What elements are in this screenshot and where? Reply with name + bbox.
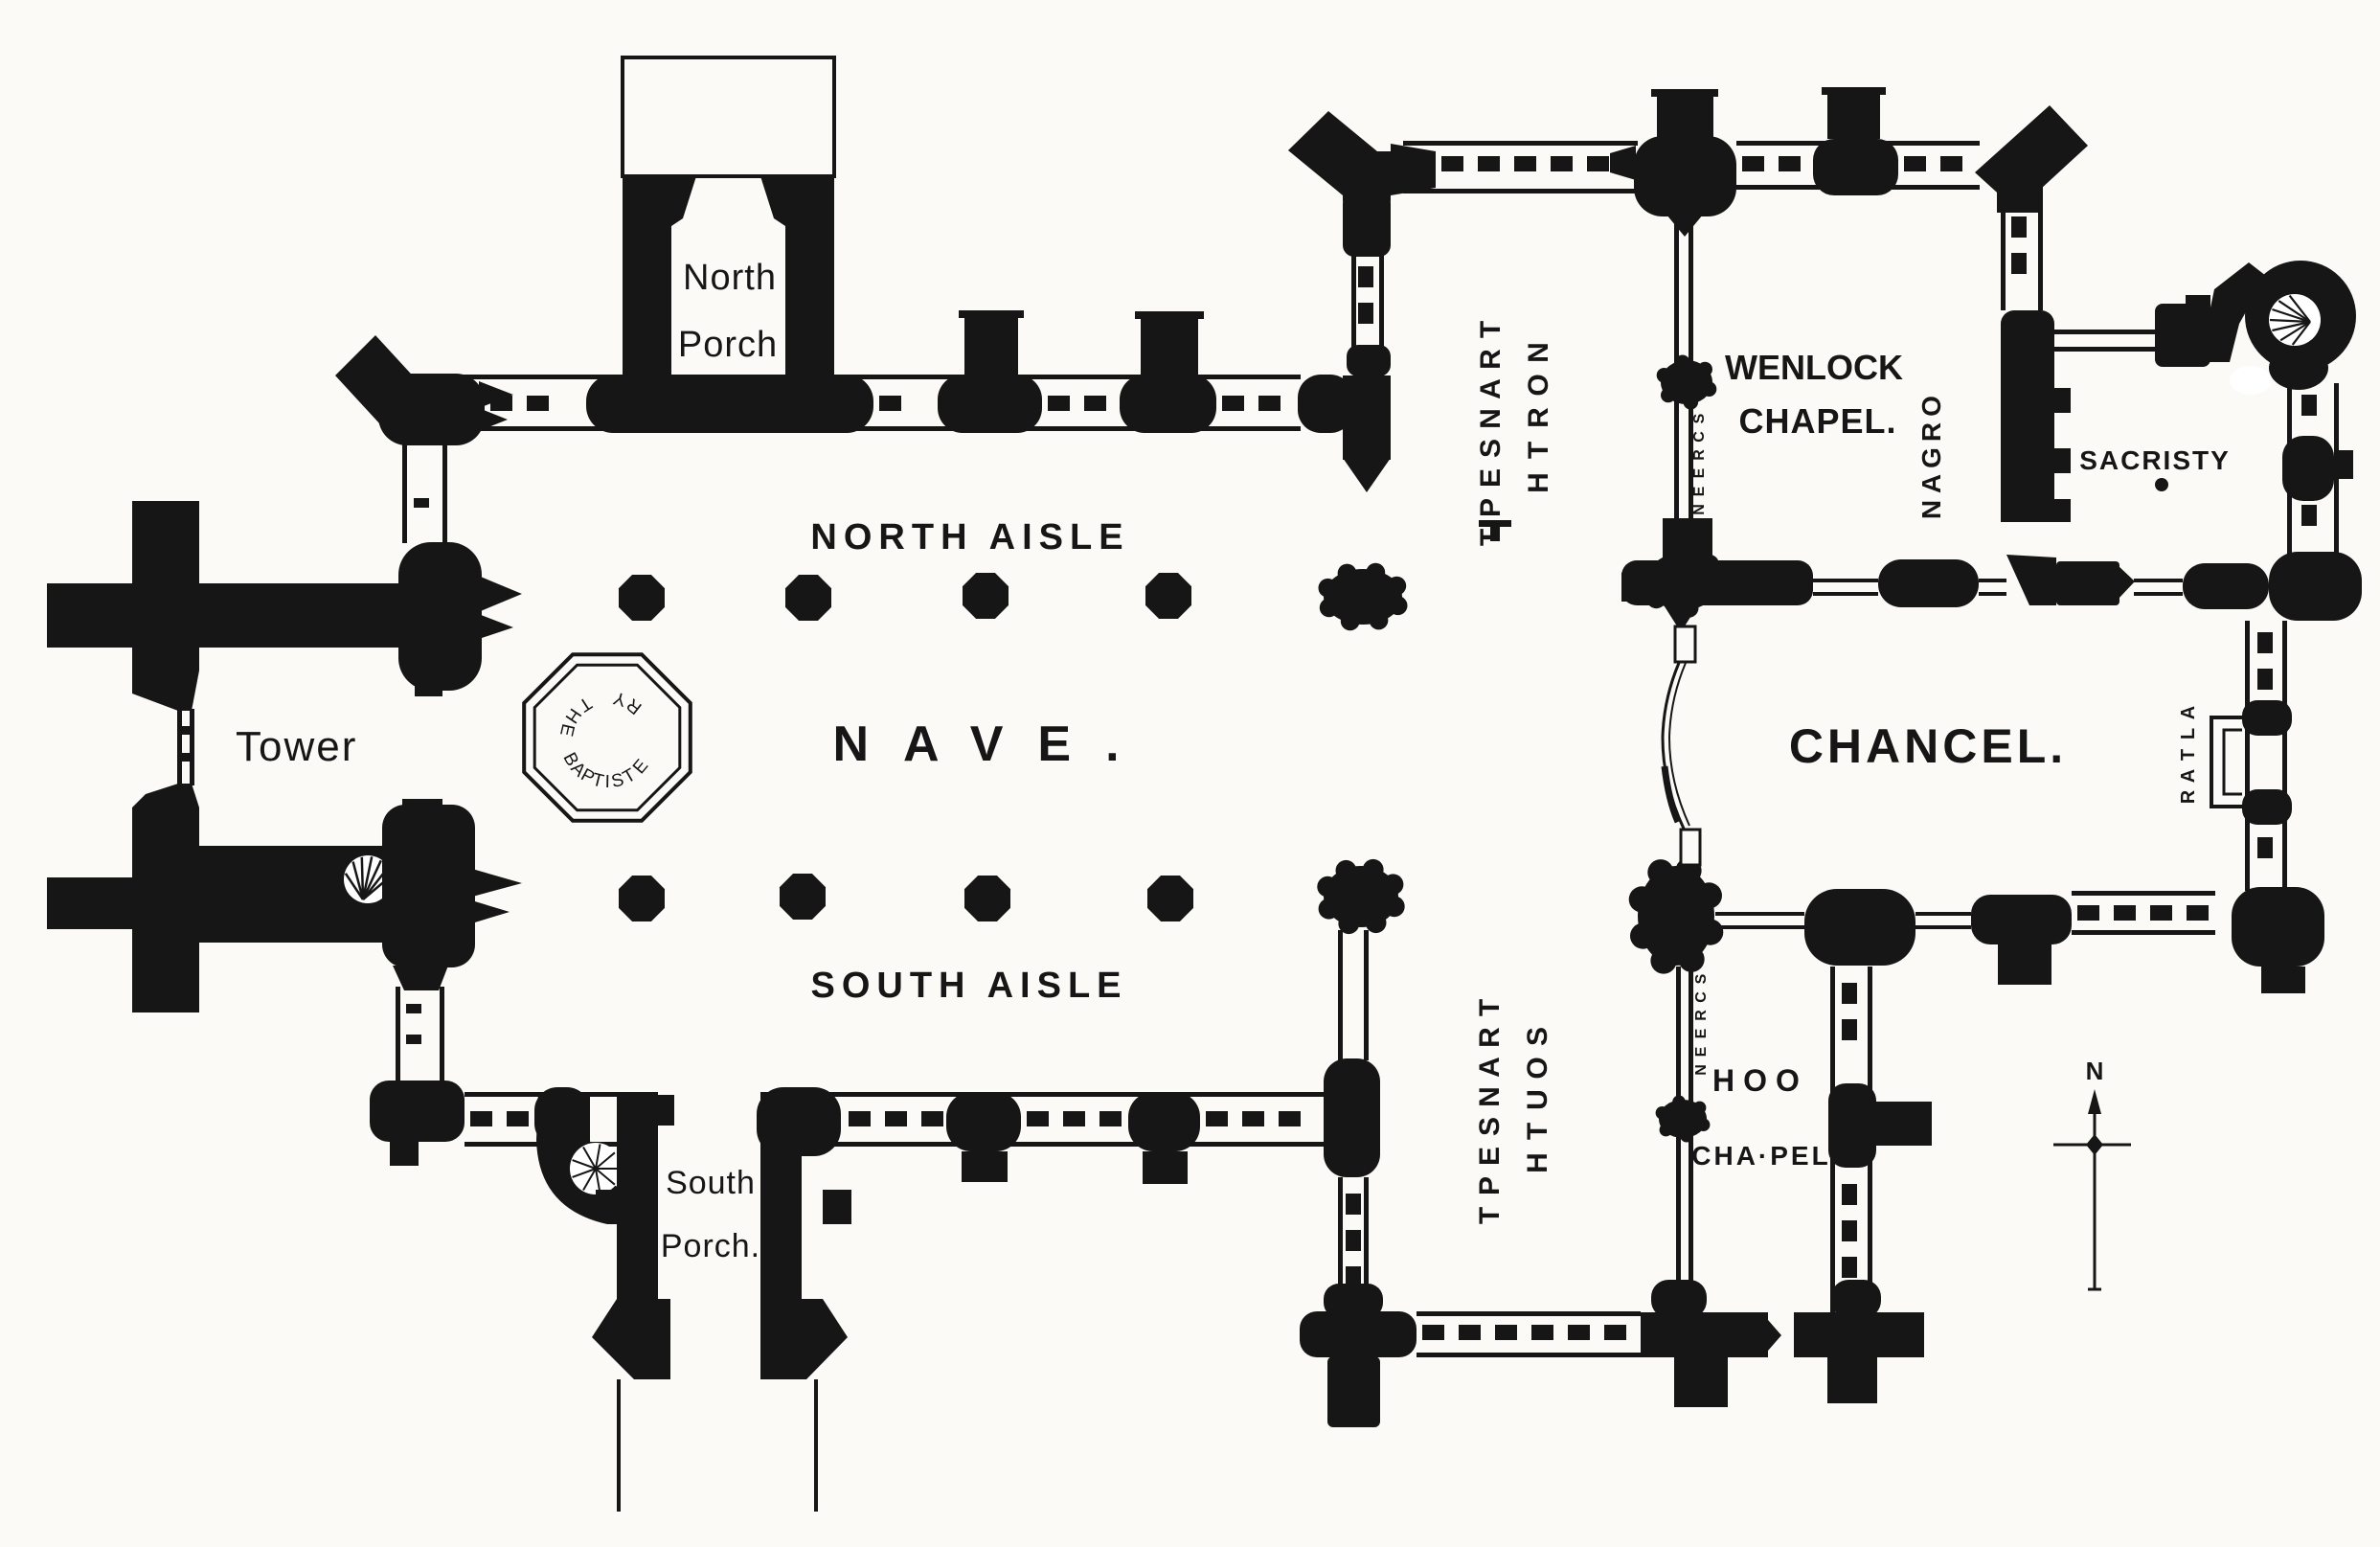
svg-text:S: S (1693, 973, 1710, 984)
svg-text:R: R (1916, 422, 1946, 442)
svg-text:Tower: Tower (236, 723, 357, 770)
svg-text:N: N (1693, 1064, 1710, 1076)
svg-text:N: N (1475, 408, 1507, 429)
svg-text:E: E (1691, 486, 1708, 496)
svg-text:E: E (1693, 1046, 1710, 1057)
svg-text:N: N (2086, 1057, 2104, 1085)
svg-text:N: N (1523, 342, 1554, 363)
svg-text:S: S (1474, 1117, 1506, 1136)
svg-text:O: O (1522, 1057, 1553, 1079)
svg-text:S: S (1475, 439, 1507, 458)
svg-text:A: A (2178, 769, 2199, 783)
svg-text:H: H (1523, 472, 1554, 493)
svg-text:E: E (1475, 468, 1507, 488)
svg-text:R: R (1693, 1010, 1710, 1021)
svg-text:T: T (1474, 1207, 1506, 1224)
svg-text:R: R (1691, 449, 1708, 461)
svg-text:CHAPEL.: CHAPEL. (1738, 401, 1896, 441)
svg-text:SACRISTY: SACRISTY (2079, 445, 2231, 475)
svg-text:A: A (1474, 1057, 1506, 1078)
svg-text:H: H (1522, 1152, 1553, 1173)
svg-text:E: E (1693, 1028, 1710, 1038)
svg-text:P: P (1474, 1176, 1506, 1195)
svg-text:N: N (1916, 500, 1946, 519)
svg-text:P: P (1475, 498, 1507, 517)
svg-text:R: R (1523, 407, 1554, 428)
svg-text:C: C (1691, 431, 1708, 443)
svg-text:N: N (1691, 504, 1708, 515)
svg-text:S: S (1522, 1027, 1553, 1046)
svg-text:SOUTH AISLE: SOUTH AISLE (810, 966, 1127, 1006)
svg-text:NORTH AISLE: NORTH AISLE (810, 517, 1129, 557)
svg-text:U: U (1522, 1089, 1553, 1110)
svg-text:Porch.: Porch. (661, 1228, 760, 1264)
svg-text:A: A (1916, 474, 1946, 493)
svg-text:T: T (1475, 321, 1507, 338)
svg-text:G: G (1916, 447, 1946, 468)
svg-text:L: L (2178, 728, 2199, 739)
svg-text:R: R (2178, 789, 2199, 804)
svg-text:HOO: HOO (1712, 1063, 1808, 1098)
svg-text:E: E (1474, 1147, 1506, 1166)
svg-text:CHANCEL.: CHANCEL. (1789, 719, 2067, 773)
svg-text:North: North (683, 258, 777, 298)
svg-text:O: O (1916, 396, 1946, 417)
svg-text:O: O (1523, 374, 1554, 396)
svg-text:T: T (1523, 442, 1554, 459)
svg-text:R: R (1475, 349, 1507, 370)
svg-text:A: A (1475, 378, 1507, 399)
svg-text:T: T (1522, 1123, 1553, 1140)
svg-text:T: T (2178, 749, 2199, 761)
svg-text:C: C (1693, 991, 1710, 1003)
svg-text:South: South (666, 1165, 756, 1201)
svg-text:T: T (1474, 999, 1506, 1016)
svg-text:R: R (1474, 1027, 1506, 1048)
svg-text:CHA·PEL: CHA·PEL (1691, 1141, 1830, 1171)
svg-text:A: A (2178, 706, 2199, 719)
svg-text:E: E (1691, 467, 1708, 478)
svg-text:WENLOCK: WENLOCK (1725, 348, 1903, 387)
svg-text:S: S (1691, 413, 1708, 423)
svg-text:Porch: Porch (678, 325, 778, 365)
svg-text:N: N (1474, 1086, 1506, 1107)
svg-text:NAVE.: NAVE. (832, 717, 1153, 772)
